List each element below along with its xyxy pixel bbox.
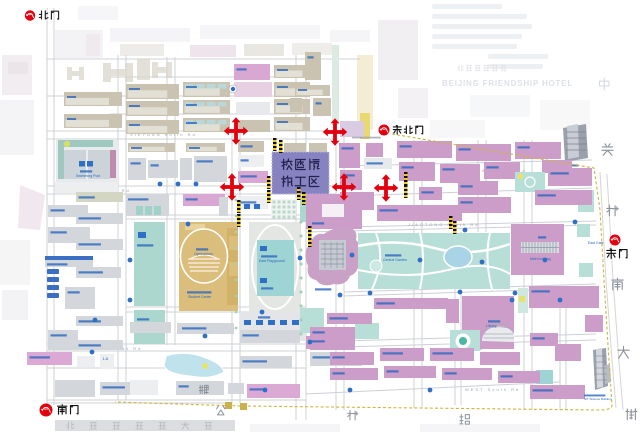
- svg-text:Student Center: Student Center: [188, 295, 212, 299]
- svg-text:Swimming Pool: Swimming Pool: [76, 174, 100, 178]
- svg-text:1-6: 1-6: [103, 356, 110, 361]
- svg-text:Central Garden: Central Garden: [383, 258, 407, 262]
- svg-text:BEIJING FRIENDSHIP HOTEL: BEIJING FRIENDSHIP HOTEL: [442, 79, 573, 88]
- svg-text:SIT Science Building: SIT Science Building: [584, 397, 612, 401]
- svg-text:East Gate: East Gate: [588, 241, 604, 245]
- svg-text:East Playground: East Playground: [259, 259, 285, 263]
- svg-text:Library: Library: [486, 324, 497, 328]
- svg-text:WEST South Rd: WEST South Rd: [465, 387, 520, 392]
- svg-text:Main building: Main building: [530, 257, 551, 261]
- svg-text:JIAOTONG North Rd: JIAOTONG North Rd: [408, 222, 480, 227]
- svg-text:Gymnasium: Gymnasium: [194, 252, 213, 256]
